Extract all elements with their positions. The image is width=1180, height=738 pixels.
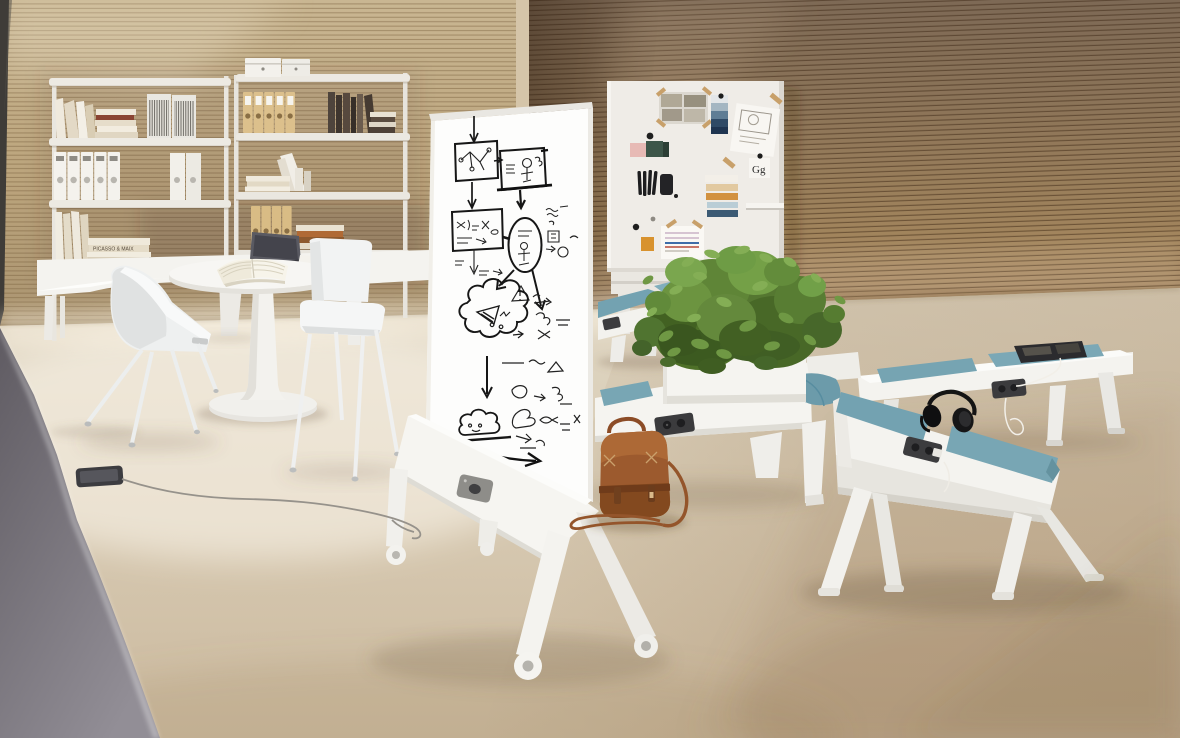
svg-text:PICASSO & MAIX: PICASSO & MAIX [93, 247, 134, 253]
svg-text:Gg: Gg [752, 164, 766, 176]
